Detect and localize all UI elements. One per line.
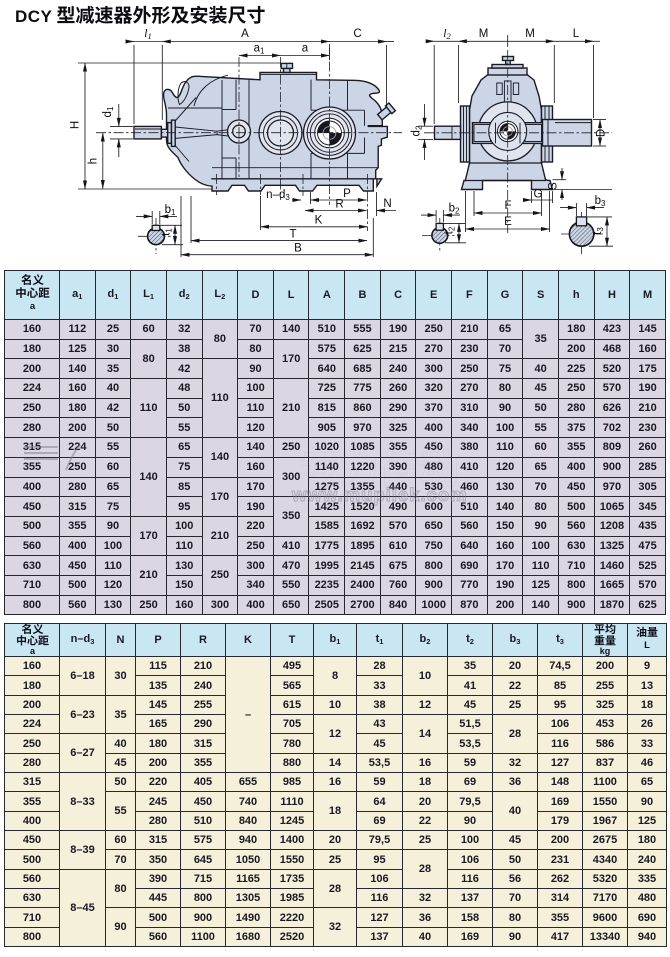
svg-text:R: R xyxy=(335,199,343,211)
svg-text:P: P xyxy=(343,188,351,200)
svg-text:M: M xyxy=(525,28,535,40)
svg-text:M: M xyxy=(479,28,489,40)
svg-text:n–d3: n–d3 xyxy=(266,189,290,202)
svg-text:S: S xyxy=(548,182,560,190)
svg-text:a: a xyxy=(302,43,309,55)
svg-text:l1: l1 xyxy=(144,28,151,41)
svg-text:h: h xyxy=(88,158,100,164)
svg-text:A: A xyxy=(241,28,249,40)
svg-text:d1: d1 xyxy=(102,106,115,117)
svg-text:b2: b2 xyxy=(449,203,460,216)
svg-text:d2: d2 xyxy=(411,125,424,136)
svg-text:l2: l2 xyxy=(443,28,451,41)
svg-text:N: N xyxy=(383,198,391,210)
svg-text:a1: a1 xyxy=(254,43,265,56)
svg-text:F: F xyxy=(504,200,511,212)
svg-text:b1: b1 xyxy=(165,204,176,217)
svg-text:a: a xyxy=(29,646,35,656)
svg-text:L: L xyxy=(573,28,580,40)
svg-text:B: B xyxy=(294,242,302,254)
svg-text:C: C xyxy=(353,28,361,40)
svg-text:K: K xyxy=(315,215,323,227)
svg-text:a: a xyxy=(29,301,35,312)
svg-text:kg: kg xyxy=(600,646,611,656)
svg-text:H: H xyxy=(70,121,82,129)
svg-text:T: T xyxy=(289,228,296,240)
svg-text:DCY: DCY xyxy=(15,7,53,26)
svg-text:D: D xyxy=(596,129,608,137)
svg-text:b3: b3 xyxy=(595,195,606,208)
svg-text:E: E xyxy=(504,216,512,228)
svg-text:L: L xyxy=(644,640,650,651)
